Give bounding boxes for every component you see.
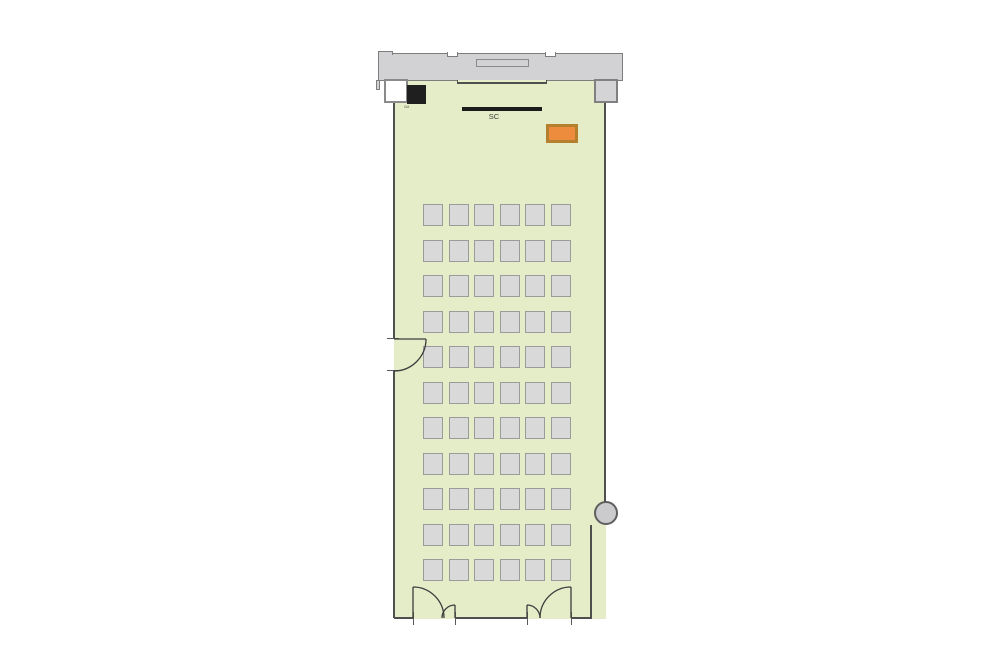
seat <box>525 204 545 226</box>
projection-screen-bar <box>462 107 542 111</box>
seat <box>474 311 494 333</box>
seat <box>551 346 571 368</box>
seat <box>423 417 443 439</box>
seat <box>474 524 494 546</box>
seat <box>449 524 469 546</box>
seat <box>449 453 469 475</box>
corridor-left-step <box>378 51 393 55</box>
seat <box>423 559 443 581</box>
seat <box>474 240 494 262</box>
seat <box>474 204 494 226</box>
seat <box>423 346 443 368</box>
seat <box>449 417 469 439</box>
bottom-wall-left <box>394 617 413 619</box>
seat <box>423 311 443 333</box>
av-console-box <box>407 85 426 104</box>
seat <box>525 488 545 510</box>
seat <box>525 382 545 404</box>
seat <box>500 204 520 226</box>
seat <box>474 488 494 510</box>
seat <box>500 488 520 510</box>
bottom-wall-middle <box>455 617 527 619</box>
seat <box>449 311 469 333</box>
seat <box>551 240 571 262</box>
room-top-wall <box>457 80 547 84</box>
seat <box>525 240 545 262</box>
left-wall-lower <box>393 370 395 618</box>
corridor-band <box>378 53 623 81</box>
left-wall-upper <box>393 80 395 338</box>
corridor-top-notch-right <box>545 52 556 57</box>
seat <box>551 204 571 226</box>
seat <box>423 275 443 297</box>
seat <box>525 311 545 333</box>
right-wall <box>604 80 606 502</box>
seat <box>423 488 443 510</box>
bottom-wall-right <box>571 617 592 619</box>
seat <box>423 453 443 475</box>
seat <box>500 524 520 546</box>
seat <box>474 346 494 368</box>
seat <box>525 524 545 546</box>
pillar-circle <box>594 501 618 525</box>
corridor-top-notch-left <box>447 52 458 57</box>
seat <box>525 453 545 475</box>
seat <box>423 204 443 226</box>
door-jamb <box>455 612 457 625</box>
seat <box>500 559 520 581</box>
console-label: i1# <box>404 105 424 109</box>
door-jamb <box>527 612 529 625</box>
door-jamb <box>387 338 399 340</box>
seat <box>500 453 520 475</box>
seat <box>500 346 520 368</box>
seat <box>551 453 571 475</box>
right-wall-inner-lower <box>590 525 592 619</box>
seat <box>551 311 571 333</box>
seat <box>500 311 520 333</box>
seat <box>551 417 571 439</box>
seat <box>423 382 443 404</box>
wall-stub <box>376 80 380 90</box>
seat <box>449 382 469 404</box>
seat <box>474 417 494 439</box>
seat <box>551 488 571 510</box>
seat <box>474 559 494 581</box>
door-jamb <box>413 612 415 625</box>
seat <box>525 559 545 581</box>
seat <box>449 240 469 262</box>
lectern-desk <box>546 124 578 143</box>
seat <box>474 275 494 297</box>
seat <box>423 240 443 262</box>
seat <box>449 275 469 297</box>
seat <box>500 275 520 297</box>
seat <box>500 382 520 404</box>
floor-plan-page: { "plan": { "type": "room floor plan", "… <box>0 0 1000 670</box>
seat <box>449 559 469 581</box>
seat <box>500 417 520 439</box>
corridor-window <box>476 59 529 67</box>
seat <box>449 488 469 510</box>
room-top-wall-step-left <box>457 80 458 84</box>
seat <box>449 346 469 368</box>
whiteboard-box <box>384 79 408 103</box>
corner-column-box <box>594 79 618 103</box>
seat <box>449 204 469 226</box>
seat <box>525 346 545 368</box>
seat <box>551 382 571 404</box>
seat <box>474 382 494 404</box>
door-jamb <box>571 612 573 625</box>
seat <box>474 453 494 475</box>
seat <box>423 524 443 546</box>
seat <box>500 240 520 262</box>
screen-label: SC <box>462 113 526 121</box>
door-jamb <box>387 370 399 372</box>
room-top-wall-step-right <box>546 80 547 84</box>
seat <box>551 524 571 546</box>
seat <box>525 275 545 297</box>
seat <box>525 417 545 439</box>
seat <box>551 275 571 297</box>
seat <box>551 559 571 581</box>
